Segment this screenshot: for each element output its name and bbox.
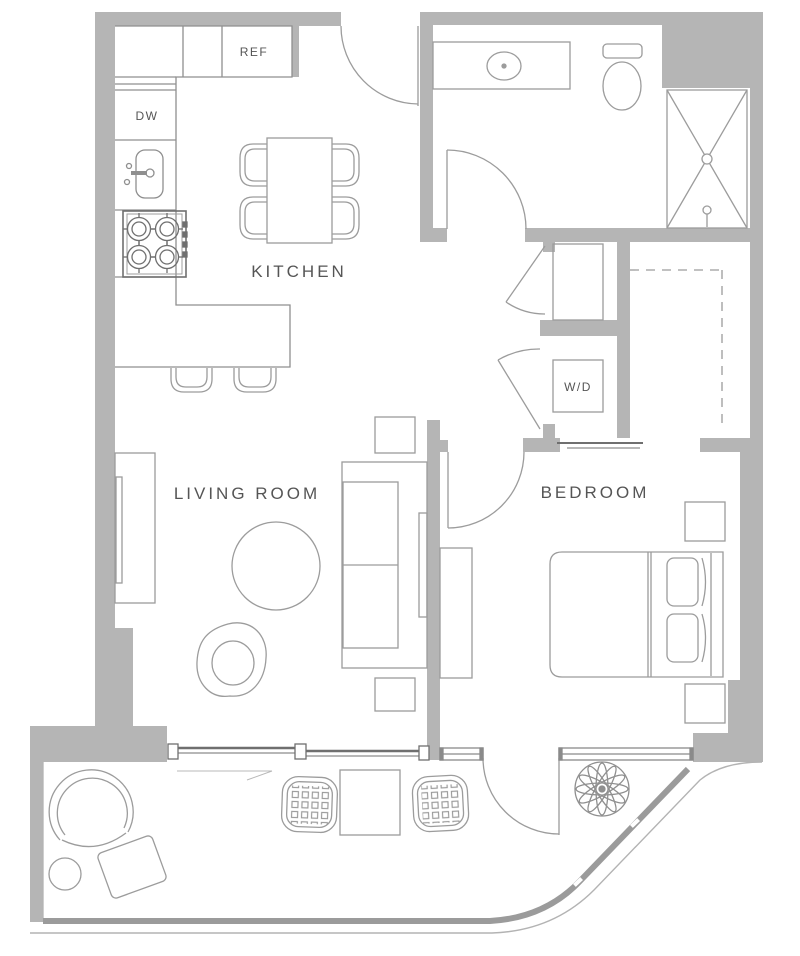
pillow [667, 614, 698, 662]
doors [341, 26, 559, 835]
kitchen-sink [125, 150, 164, 198]
wicker-chair [412, 775, 470, 833]
end-table-top [375, 417, 415, 453]
nightstand [685, 502, 725, 541]
dining-table [267, 138, 332, 243]
kitchen-area [115, 26, 359, 392]
burner [151, 213, 183, 245]
vanity [433, 42, 570, 89]
toilet [603, 44, 642, 110]
stove [123, 211, 187, 277]
tv-console [115, 453, 155, 603]
bedroom-label: BEDROOM [541, 483, 650, 502]
dresser [440, 548, 472, 678]
accent-table [197, 623, 266, 697]
bedroom-windows [440, 748, 693, 760]
floor-plan: KITCHEN LIVING ROOM BEDROOM REF DW W/D [0, 0, 800, 956]
sliding-glass-door [168, 744, 429, 780]
coffee-table [232, 522, 320, 610]
bedroom-door [448, 452, 524, 528]
dining-chairs [240, 144, 359, 239]
hall-closet-door [506, 246, 545, 314]
washer-dryer-door [498, 349, 540, 429]
end-table-bottom [375, 678, 415, 711]
kitchen-label: KITCHEN [251, 262, 347, 281]
living-room-area [115, 417, 427, 711]
bedroom-area [440, 502, 725, 760]
bathroom-door [447, 150, 526, 229]
nightstand [685, 684, 725, 723]
burner [151, 241, 183, 273]
dishwasher-label: DW [136, 109, 159, 123]
lounge-chair [49, 770, 133, 847]
shower [667, 90, 747, 228]
balcony-door [483, 758, 559, 835]
balcony-railing [30, 762, 762, 933]
round-side-table [49, 858, 81, 890]
closet-shelf [553, 244, 603, 320]
burner [123, 213, 155, 245]
bar-stools [171, 368, 276, 392]
pillow [667, 558, 698, 606]
wicker-chair [281, 776, 338, 833]
sofa [342, 462, 427, 668]
bed [550, 552, 723, 677]
refrigerator-label: REF [240, 45, 269, 59]
entry-door [341, 26, 418, 106]
potted-plant [575, 762, 629, 816]
walls [30, 12, 763, 922]
ottoman [97, 835, 168, 900]
walk-in-closet-rod [630, 270, 722, 424]
burner [123, 241, 155, 273]
balcony [30, 762, 762, 933]
outdoor-table [340, 770, 400, 835]
closets [553, 244, 722, 448]
living-room-label: LIVING ROOM [174, 484, 320, 503]
bedroom-cased-opening [557, 443, 643, 448]
labels: KITCHEN LIVING ROOM BEDROOM REF DW W/D [136, 45, 650, 503]
washer-dryer-label: W/D [564, 380, 592, 394]
